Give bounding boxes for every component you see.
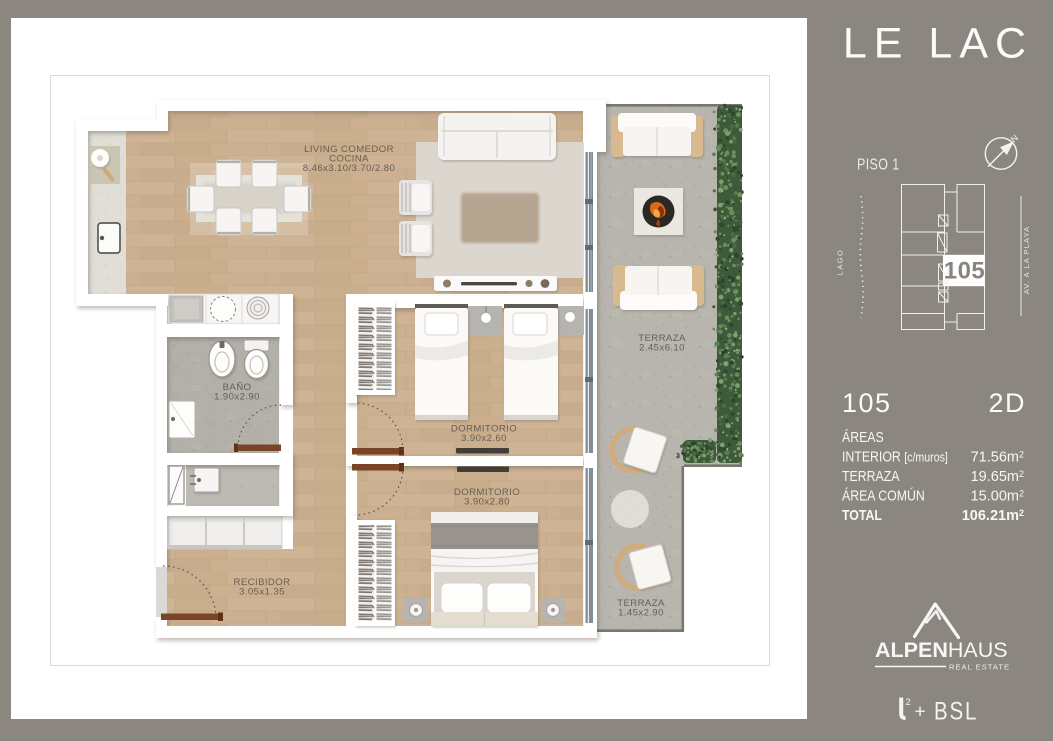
svg-text:2D: 2D <box>988 388 1026 418</box>
svg-text:AV. A LA PLAYA: AV. A LA PLAYA <box>1022 226 1031 295</box>
svg-text:LAGO: LAGO <box>836 249 845 275</box>
svg-text:3.90x2.80: 3.90x2.80 <box>464 497 510 508</box>
svg-text:105: 105 <box>944 258 986 285</box>
svg-text:2.45x6.10: 2.45x6.10 <box>639 343 685 354</box>
svg-text:3.90x2.60: 3.90x2.60 <box>461 433 507 444</box>
svg-text:PISO 1: PISO 1 <box>857 156 900 174</box>
svg-text:TOTAL: TOTAL <box>842 507 882 523</box>
svg-text:105: 105 <box>842 388 892 418</box>
svg-text:1.45x2.90: 1.45x2.90 <box>618 608 664 619</box>
svg-text:1.90x2.90: 1.90x2.90 <box>214 392 260 403</box>
svg-text:2: 2 <box>906 697 911 708</box>
svg-text:TERRAZA: TERRAZA <box>842 468 899 484</box>
svg-text:106.21m2: 106.21m2 <box>962 508 1024 524</box>
svg-text:REAL ESTATE: REAL ESTATE <box>949 663 1010 672</box>
svg-text:71.56m2: 71.56m2 <box>971 450 1024 466</box>
svg-text:8.46x3.10/3.70/2.80: 8.46x3.10/3.70/2.80 <box>303 163 395 174</box>
svg-text:ÁREAS: ÁREAS <box>842 429 884 445</box>
svg-text:LE LAC: LE LAC <box>843 20 1033 68</box>
svg-text:3.05x1.35: 3.05x1.35 <box>239 587 285 598</box>
svg-text:15.00m2: 15.00m2 <box>971 489 1024 505</box>
svg-text:19.65m2: 19.65m2 <box>971 469 1024 485</box>
svg-text:+: + <box>915 702 926 723</box>
svg-text:ALPENHAUS: ALPENHAUS <box>875 638 1008 662</box>
svg-text:BSL: BSL <box>934 697 978 725</box>
svg-text:ÁREA COMÚN: ÁREA COMÚN <box>842 488 925 504</box>
svg-text:INTERIOR [c/muros]: INTERIOR [c/muros] <box>842 449 948 465</box>
